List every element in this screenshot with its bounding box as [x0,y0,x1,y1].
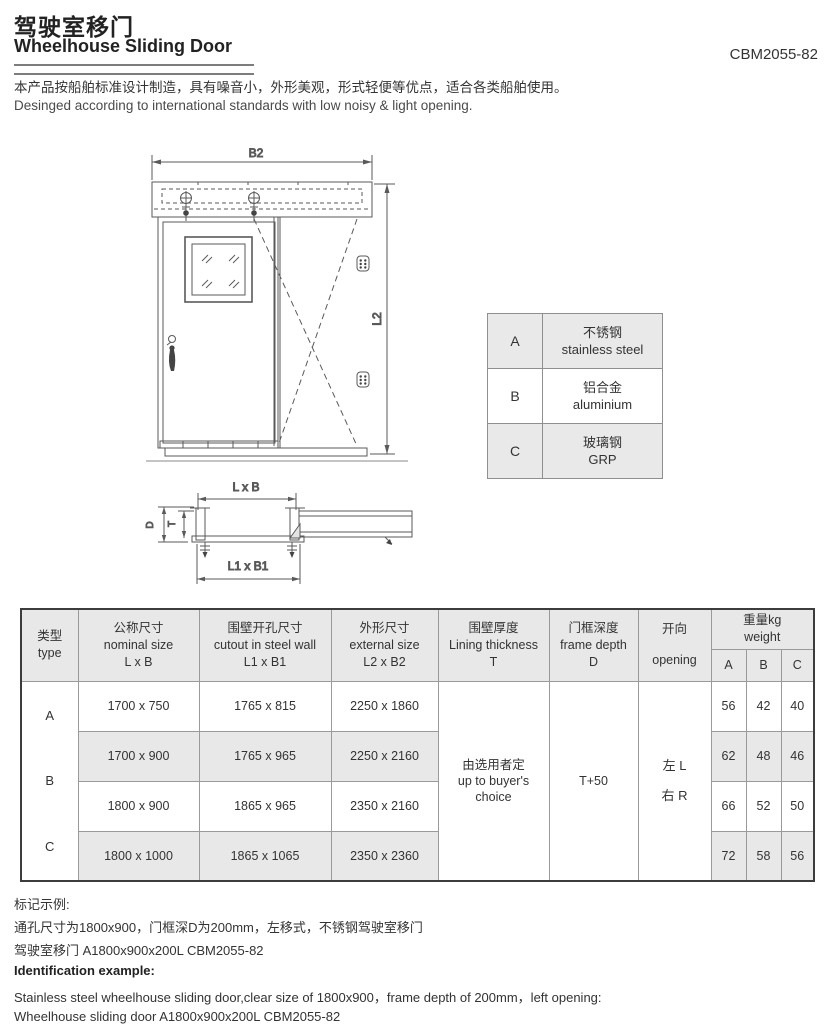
table-row: B 铝合金 aluminium [488,369,663,424]
nominal-size-value: 1700 x 750 [78,681,199,731]
example-line1-english: Stainless steel wheelhouse sliding door,… [14,987,602,1006]
nominal-size-value: 1800 x 900 [78,781,199,831]
material-name-zh: 铝合金 [543,379,662,396]
description-english: Desinged according to international stan… [14,98,473,113]
material-name: 玻璃钢 GRP [543,424,663,479]
col-header-type: 类型type [21,609,78,681]
door-elevation-drawing: B2 [138,143,408,478]
sliding-leaf-section [290,511,412,545]
opening-left-label: 左 L [639,751,711,781]
product-code: CBM2055-82 [730,46,818,63]
col-header-weight-b: B [746,649,781,681]
material-name-zh: 玻璃钢 [543,434,662,451]
weight-b-value: 48 [746,731,781,781]
dimension-t: T [167,511,194,538]
cross-section-drawing: L x B [130,480,430,595]
frame-profile [190,508,305,558]
example-line2-chinese: 驾驶室移门 A1800x900x200L CBM2055-82 [14,940,264,959]
col-header-external-size: 外形尺寸external sizeL2 x B2 [331,609,438,681]
example-line1-chinese: 通孔尺寸为1800x900，门框深D为200mm，左移式，不锈钢驾驶室移门 [14,917,423,936]
nominal-size-value: 1700 x 900 [78,731,199,781]
material-code: B [488,369,543,424]
example-title-english: Identification example: [14,963,155,978]
type-b: B [22,773,78,788]
nominal-size-value: 1800 x 1000 [78,831,199,881]
threshold [146,441,408,461]
example-title-chinese: 标记示例: [14,894,70,913]
page-title-english: Wheelhouse Sliding Door [14,36,232,57]
dimension-lxb: L x B [198,480,296,510]
dimension-l2: L2 [370,184,395,454]
door-handle [167,336,176,372]
document-page: 驾驶室移门 Wheelhouse Sliding Door CBM2055-82… [0,0,830,1034]
weight-a-value: 62 [711,731,746,781]
example-line2-english: Wheelhouse sliding door A1800x900x200L C… [14,1009,340,1024]
external-size-value: 2250 x 1860 [331,681,438,731]
weight-b-value: 58 [746,831,781,881]
col-header-cutout: 围壁开孔尺寸cutout in steel wallL1 x B1 [199,609,331,681]
frame-depth-cell: T+50 [549,681,638,881]
table-row: A B C 1700 x 750 1765 x 815 2250 x 1860 … [21,681,814,731]
lining-thickness-cell: 由选用者定 up to buyer's choice [438,681,549,881]
weight-a-value: 72 [711,831,746,881]
material-name: 铝合金 aluminium [543,369,663,424]
cutout-value: 1765 x 965 [199,731,331,781]
dimension-b2: B2 [152,146,372,180]
dim-label-b2: B2 [249,146,264,160]
dim-label-t: T [167,521,178,527]
material-code: C [488,424,543,479]
weight-c-value: 46 [781,731,814,781]
material-name-en: aluminium [543,396,662,413]
material-name-en: GRP [543,451,662,468]
opening-dashed-x [254,219,357,446]
door-window [185,237,252,302]
table-row: A 不锈钢 stainless steel [488,314,663,369]
material-name-en: stainless steel [543,341,662,358]
opening-right-label: 右 R [639,781,711,811]
col-header-weight-c: C [781,649,814,681]
cutout-value: 1765 x 815 [199,681,331,731]
dim-label-lxb: L x B [233,480,260,494]
opening-cell: 左 L 右 R [638,681,711,881]
table-header-row: 类型type 公称尺寸nominal sizeL x B 围壁开孔尺寸cutou… [21,609,814,649]
wall-cleat-bottom [357,372,369,387]
weight-a-value: 56 [711,681,746,731]
cutout-value: 1865 x 1065 [199,831,331,881]
col-header-opening: 开向opening [638,609,711,681]
material-name-zh: 不锈钢 [543,324,662,341]
col-header-weight-a: A [711,649,746,681]
weight-c-value: 56 [781,831,814,881]
material-legend-table: A 不锈钢 stainless steel B 铝合金 aluminium C … [487,313,663,479]
type-cell: A B C [21,681,78,881]
dim-label-l2: L2 [370,312,384,326]
weight-a-value: 66 [711,781,746,831]
material-name: 不锈钢 stainless steel [543,314,663,369]
weight-c-value: 50 [781,781,814,831]
weight-b-value: 42 [746,681,781,731]
col-header-weight: 重量kgweight [711,609,814,649]
dim-label-l1xb1: L1 x B1 [228,559,269,573]
external-size-value: 2250 x 2160 [331,731,438,781]
col-header-nominal-size: 公称尺寸nominal sizeL x B [78,609,199,681]
description-chinese: 本产品按船舶标准设计制造，具有噪音小，外形美观，形式轻便等优点，适合各类船舶使用… [14,76,568,96]
specification-table: 类型type 公称尺寸nominal sizeL x B 围壁开孔尺寸cutou… [20,608,815,882]
type-c: C [22,839,78,854]
table-row: C 玻璃钢 GRP [488,424,663,479]
glass-marks [202,255,239,288]
cutout-value: 1865 x 965 [199,781,331,831]
title-double-underline [14,64,254,75]
dim-label-d: D [145,521,156,528]
material-code: A [488,314,543,369]
weight-c-value: 40 [781,681,814,731]
col-header-frame-depth: 门框深度frame depthD [549,609,638,681]
dimension-l1xb1: L1 x B1 [197,544,300,584]
type-a: A [22,708,78,723]
external-size-value: 2350 x 2160 [331,781,438,831]
weight-b-value: 52 [746,781,781,831]
door-leaf [158,217,280,448]
col-header-lining-thickness: 围壁厚度Lining thicknessT [438,609,549,681]
external-size-value: 2350 x 2360 [331,831,438,881]
wall-cleat-top [357,256,369,271]
